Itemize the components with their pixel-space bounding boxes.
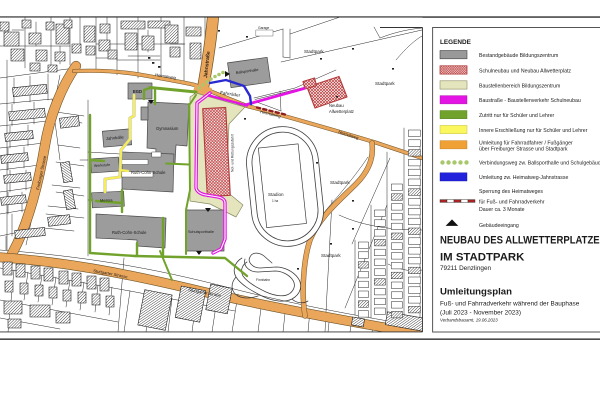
svg-text:Baustraße - Baustellenverkehr: Baustraße - Baustellenverkehr Schulneuba… bbox=[479, 98, 581, 104]
svg-text:Mensa: Mensa bbox=[100, 197, 113, 203]
svg-text:Verbindungsweg zw. Ballsportha: Verbindungsweg zw. Ballsporthalle und Sc… bbox=[479, 161, 600, 167]
svg-text:Neubau: Neubau bbox=[329, 103, 344, 108]
svg-text:Schulneubau und Neubau Allwett: Schulneubau und Neubau Allwetterplatz bbox=[479, 68, 571, 74]
svg-text:Sperrung des Heimatweges: Sperrung des Heimatweges bbox=[479, 189, 543, 195]
svg-text:Fuß- und Fahrradverkehr währen: Fuß- und Fahrradverkehr während der Baup… bbox=[440, 300, 580, 307]
svg-text:Stadtpark: Stadtpark bbox=[321, 253, 341, 258]
svg-text:Garage: Garage bbox=[258, 26, 269, 30]
svg-text:Gymnasium: Gymnasium bbox=[156, 126, 179, 131]
svg-text:Umleitungsplan: Umleitungsplan bbox=[440, 287, 512, 298]
svg-text:Ruth-Cohn-Schule: Ruth-Cohn-Schule bbox=[131, 170, 166, 175]
svg-text:NEUBAU DES ALLWETTERPLATZES: NEUBAU DES ALLWETTERPLATZES bbox=[440, 235, 600, 247]
svg-text:Stadtpark: Stadtpark bbox=[304, 49, 324, 54]
svg-text:EGD: EGD bbox=[133, 89, 142, 94]
svg-text:(Juli 2023 - November 2023): (Juli 2023 - November 2023) bbox=[440, 309, 521, 316]
svg-text:über Freiburger Strasse und St: über Freiburger Strasse und Stadtpark bbox=[479, 147, 568, 153]
svg-text:Stadion: Stadion bbox=[268, 192, 284, 197]
svg-text:Innere Erschließung nur für Sc: Innere Erschließung nur für Schüler und … bbox=[479, 128, 588, 134]
svg-text:Dauer ca. 3 Monate: Dauer ca. 3 Monate bbox=[479, 207, 525, 213]
svg-text:1 ha: 1 ha bbox=[272, 199, 278, 203]
svg-text:Schulsporthalle: Schulsporthalle bbox=[188, 230, 214, 234]
svg-text:79211 Denzlingen: 79211 Denzlingen bbox=[440, 265, 491, 272]
svg-text:IM STADTPARK: IM STADTPARK bbox=[440, 252, 525, 264]
svg-text:Not- und Rettungszufahrt: Not- und Rettungszufahrt bbox=[231, 134, 235, 172]
svg-text:Zutritt nur für Schüler und Le: Zutritt nur für Schüler und Lehrer bbox=[479, 113, 555, 119]
svg-text:Bestandgebäude Bildungszentrum: Bestandgebäude Bildungszentrum bbox=[479, 53, 558, 59]
svg-text:Allwetterplatz: Allwetterplatz bbox=[329, 109, 354, 114]
svg-text:Finnbahn: Finnbahn bbox=[256, 278, 270, 282]
svg-text:LEGENDE: LEGENDE bbox=[440, 39, 472, 46]
svg-text:Ruth-Cohn-Schule: Ruth-Cohn-Schule bbox=[112, 230, 147, 235]
svg-text:Gebäudeeingang: Gebäudeeingang bbox=[479, 223, 519, 229]
svg-text:Stadtpark: Stadtpark bbox=[330, 180, 350, 185]
svg-text:Baustellenbereich Bildungszent: Baustellenbereich Bildungszentrum bbox=[479, 83, 560, 89]
svg-text:Umleitung zw. Heimatweg-Jahnst: Umleitung zw. Heimatweg-Jahnstrasse bbox=[479, 175, 568, 181]
svg-text:Verbandsbauamt, 19.06.2023: Verbandsbauamt, 19.06.2023 bbox=[440, 318, 498, 323]
svg-text:Stadtpark: Stadtpark bbox=[375, 81, 395, 86]
svg-text:für Fuß- und Fahrradverkehr: für Fuß- und Fahrradverkehr bbox=[479, 200, 545, 206]
